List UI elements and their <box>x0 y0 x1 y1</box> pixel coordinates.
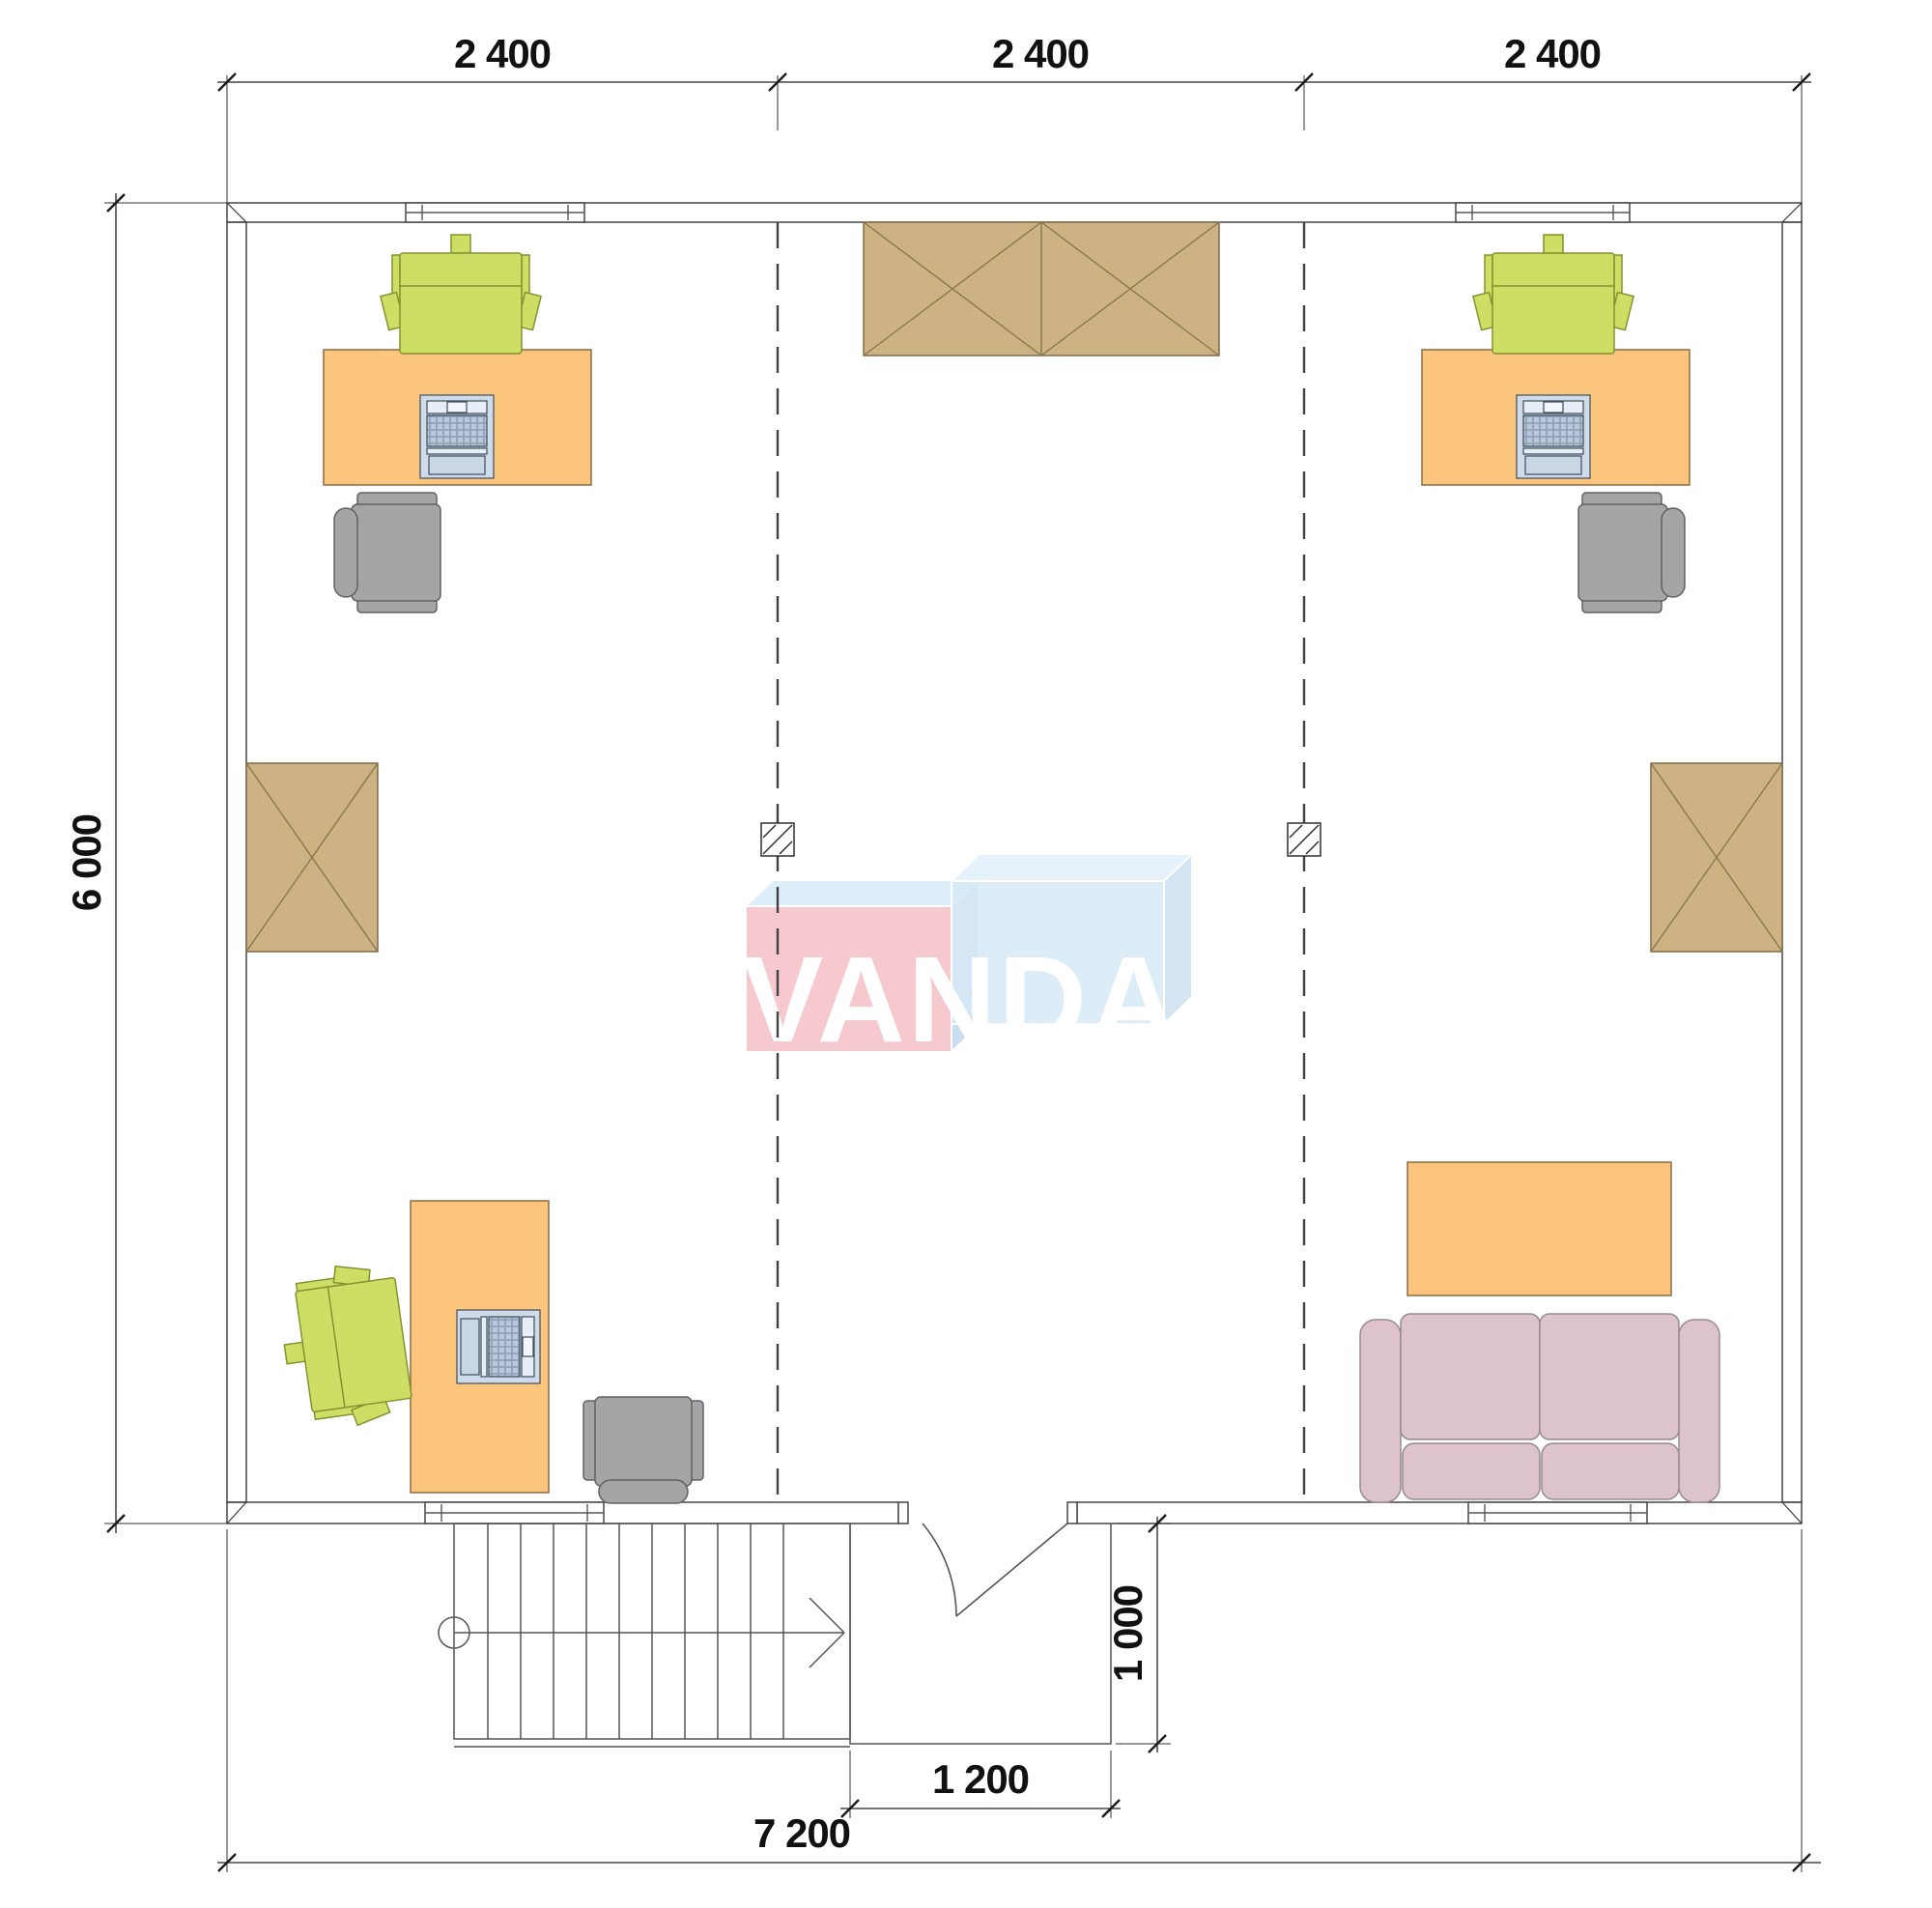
door-swing-arc <box>923 1524 956 1616</box>
armchair-top-left <box>381 235 541 354</box>
dimension-total-width: 7 200 <box>217 1529 1821 1872</box>
stairs <box>439 1524 850 1747</box>
dim-label-entry-width: 1 200 <box>932 1756 1029 1802</box>
wall-right <box>1782 222 1802 1502</box>
door-jamb-right <box>1067 1502 1077 1524</box>
brand-watermark-text: VANDA <box>742 931 1180 1068</box>
dimension-left: 6 000 <box>64 193 227 1533</box>
wall-miter-bottom-right <box>1782 1502 1802 1524</box>
dim-label-span-1: 2 400 <box>454 31 551 76</box>
task-chair-top-left <box>334 493 440 612</box>
logo-pink-top-bevel <box>746 880 979 906</box>
dim-label-entry-depth: 1 000 <box>1105 1585 1151 1682</box>
armchair-bottom-left <box>274 1258 414 1434</box>
wardrobe-left <box>246 763 378 952</box>
sofa <box>1360 1314 1719 1502</box>
coffee-table <box>1407 1162 1671 1296</box>
sofa-armrest-left <box>1360 1320 1401 1502</box>
wall-miter-top-right <box>1782 203 1802 222</box>
column-2 <box>1288 823 1321 856</box>
window-bottom-right <box>1468 1502 1647 1524</box>
wardrobe-right <box>1651 763 1782 952</box>
sofa-seat-cushion <box>1542 1443 1679 1499</box>
wall-left <box>227 222 246 1502</box>
sofa-armrest-right <box>1679 1320 1719 1502</box>
dimension-top: 2 400 2 400 2 400 <box>217 31 1811 203</box>
stair-arrow <box>810 1633 844 1667</box>
column-1 <box>761 823 794 856</box>
dim-label-span-3: 2 400 <box>1504 31 1601 76</box>
laptop-top-left <box>420 395 494 478</box>
dimension-entry-width: 1 200 <box>840 1751 1121 1818</box>
sofa-back-cushion <box>1540 1314 1679 1439</box>
dim-label-total-width: 7 200 <box>753 1810 850 1856</box>
laptop-bottom-left <box>457 1310 540 1383</box>
door-leaf <box>956 1524 1067 1616</box>
entry-door <box>898 1502 1077 1616</box>
entry-porch <box>850 1524 1111 1744</box>
stair-arrow <box>810 1598 844 1633</box>
columns <box>761 823 1321 856</box>
armchair-top-right <box>1473 235 1634 354</box>
window-top-left <box>406 203 584 222</box>
window-bottom-left <box>425 1502 604 1524</box>
laptop-top-right <box>1517 395 1590 478</box>
wall-miter-top-left <box>227 203 246 222</box>
wall-bottom-right-segment <box>1077 1502 1802 1524</box>
window-top-right <box>1456 203 1630 222</box>
task-chair-top-right <box>1578 493 1685 612</box>
floor-plan: VANDA 2 400 2 400 2 400 <box>0 0 1932 1908</box>
door-jamb-left <box>898 1502 908 1524</box>
dimension-entry-depth: 1 000 <box>1105 1515 1171 1752</box>
wall-miter-bottom-left <box>227 1502 246 1524</box>
task-chair-bottom-left <box>583 1397 703 1503</box>
watermark-logo: VANDA <box>742 854 1192 1068</box>
logo-blue-top-bevel <box>952 854 1192 881</box>
dim-label-height: 6 000 <box>64 814 109 911</box>
wardrobe-top-center <box>864 222 1219 356</box>
sofa-seat-cushion <box>1403 1443 1540 1499</box>
dim-label-span-2: 2 400 <box>992 31 1089 76</box>
sofa-back-cushion <box>1401 1314 1540 1439</box>
